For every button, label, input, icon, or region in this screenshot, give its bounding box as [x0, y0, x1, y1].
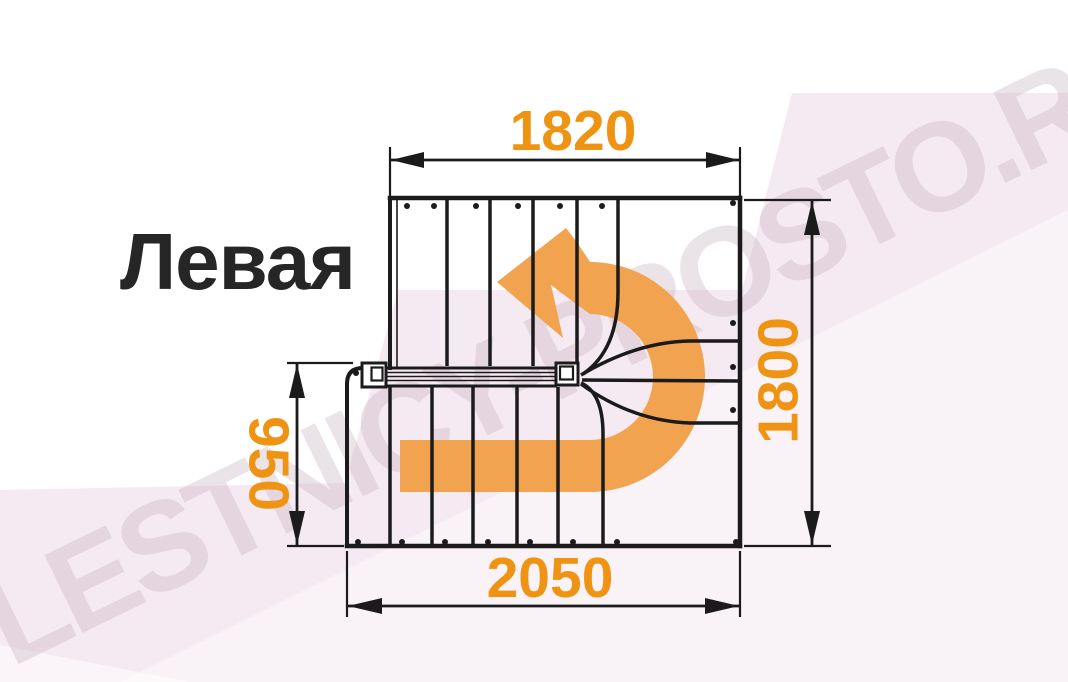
diagram-title: Левая: [120, 222, 420, 302]
dimension-top: 1820: [453, 103, 693, 160]
dimension-right: 1800: [751, 261, 808, 501]
labels-layer: Левая 1820 1800 950 2050: [0, 0, 1068, 682]
dimension-left: 950: [240, 344, 297, 584]
stair-diagram-page: LESTNICY-PROSTO.RU: [0, 0, 1068, 682]
dimension-bottom: 2050: [430, 550, 670, 607]
